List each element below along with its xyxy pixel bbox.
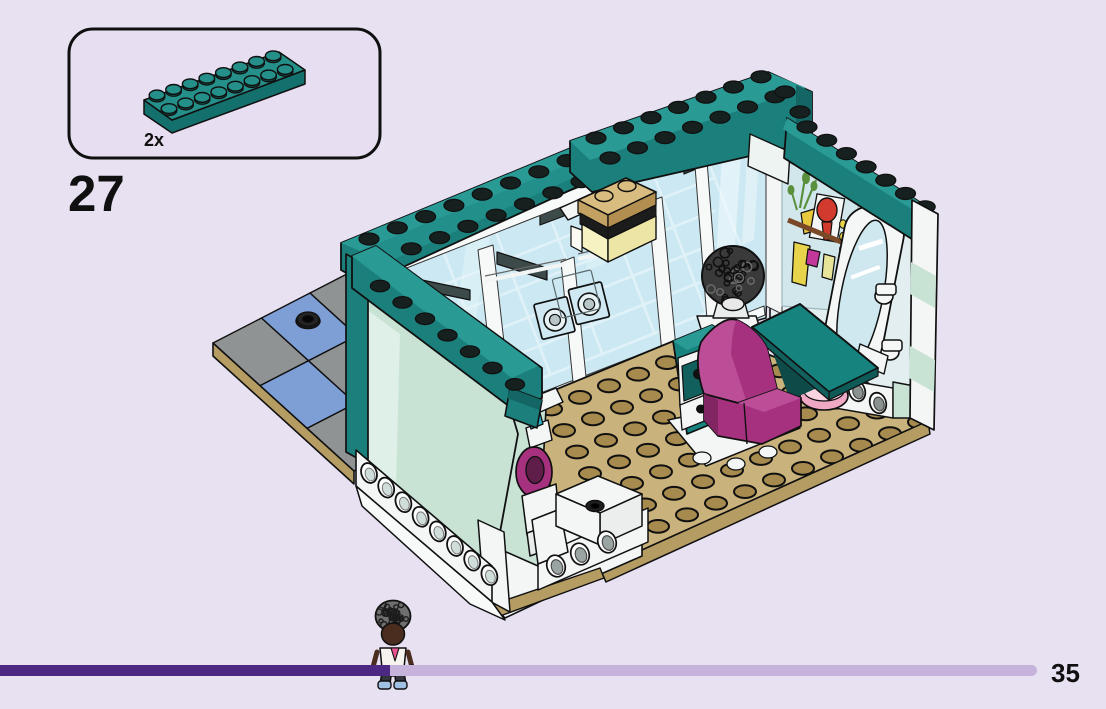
svg-text:35: 35 bbox=[1051, 658, 1080, 688]
svg-text:27: 27 bbox=[68, 165, 125, 222]
svg-text:2x: 2x bbox=[144, 130, 164, 150]
